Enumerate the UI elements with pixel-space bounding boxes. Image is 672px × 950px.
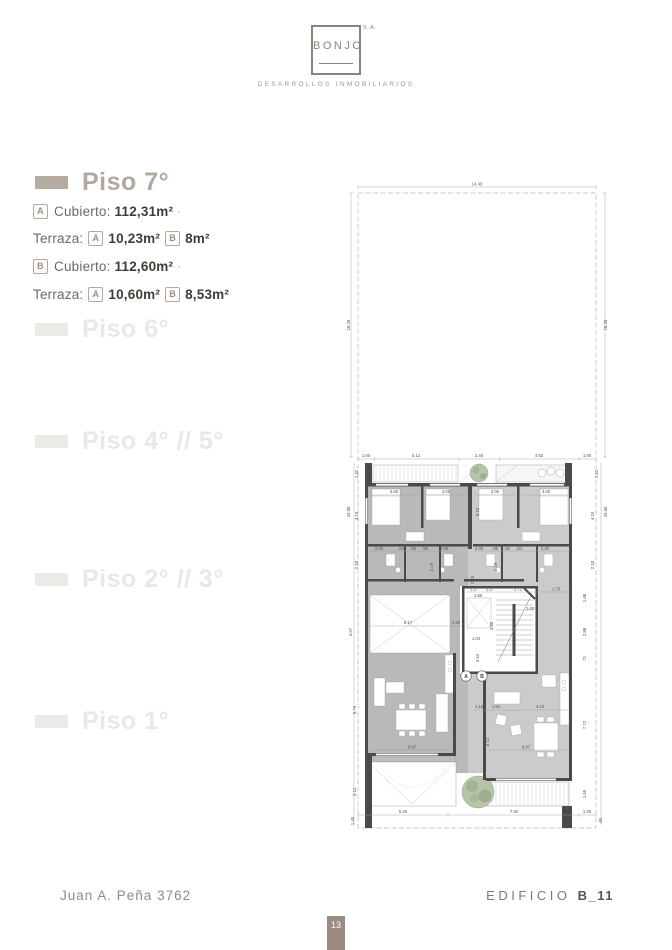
dim-label: 3.05 — [491, 489, 500, 494]
area-unit: m² — [193, 231, 210, 246]
logo-tagline: DESARROLLOS INMOBILIARIOS — [236, 81, 436, 88]
floor-item-piso-4-5[interactable]: Piso 4° // 5° — [35, 427, 224, 456]
floor-bar-icon — [35, 715, 68, 728]
floor-label: Piso 4° // 5° — [82, 427, 224, 456]
dim-label: 43.50 — [603, 506, 608, 517]
dim-label: 1.45 — [350, 816, 355, 825]
dim-label: 1.17 — [470, 587, 479, 592]
unit-a-marker: A — [464, 674, 468, 680]
dim-label: .45 — [598, 817, 603, 824]
brochure-page: BONJO S.A. DESARROLLOS INMOBILIARIOS Pis… — [0, 0, 672, 950]
dim-label: .95 — [492, 546, 499, 551]
area-line-cubierto-a: A Cubierto: 112,31m² · — [33, 204, 181, 219]
unit-a-badge: A — [88, 231, 103, 246]
dim-label: 5.12 — [412, 453, 421, 458]
dim-label: 1.42 — [594, 469, 599, 478]
dim-label: 4.80 — [489, 621, 494, 630]
floor-bar-icon — [35, 573, 68, 586]
area-value: 112,31 — [115, 204, 157, 219]
dim-label: 18.28 — [603, 319, 608, 330]
dim-label: 1.68 — [582, 593, 587, 602]
unit-b-badge: B — [165, 287, 180, 302]
dim-label: 7.72 — [582, 720, 587, 729]
area-value: 10,23 — [108, 231, 143, 246]
dim-label: 1.80 — [474, 593, 483, 598]
floor-item-piso-2-3[interactable]: Piso 2° // 3° — [35, 565, 224, 594]
area-line-terraza-b: Terraza: A 10,60m² B 8,53m² — [33, 287, 229, 302]
logo-underline — [319, 63, 353, 65]
floor-item-piso-7[interactable]: Piso 7° — [35, 168, 169, 197]
unit-b-badge: B — [165, 231, 180, 246]
dim-label: 1.00 — [583, 453, 592, 458]
area-unit: m² — [143, 287, 160, 302]
area-label: Terraza: — [33, 231, 83, 246]
dim-label: 2.20 — [470, 575, 475, 584]
dim-label: 1.16 — [475, 704, 484, 709]
footer-address: Juan A. Peña 3762 — [60, 888, 191, 903]
logo-wordmark: BONJO — [313, 40, 359, 52]
unit-a-badge: A — [33, 204, 48, 219]
dim-label: 2.00 — [440, 546, 449, 551]
separator-dot: · — [177, 206, 181, 218]
dim-label: 6.87 — [408, 745, 417, 750]
dim-label: 5.46 — [399, 809, 408, 814]
logo-frame-icon: BONJO — [311, 25, 361, 75]
dim-label: 1.00 — [362, 453, 371, 458]
separator-dot: · — [177, 261, 181, 273]
dim-label: 6.87 — [522, 745, 531, 750]
area-label: Cubierto: — [54, 259, 111, 274]
dim-label: .60 — [410, 546, 417, 551]
dim-label: 18.28 — [346, 319, 351, 330]
dim-label: 1.91 — [492, 704, 501, 709]
dim-label: 3.10 — [475, 507, 480, 516]
floor-bar-icon — [35, 176, 68, 189]
unit-b-marker: B — [480, 674, 484, 680]
dim-label: 1.00 — [583, 809, 592, 814]
dim-label: 2.30 — [541, 546, 550, 551]
dim-label: 7.92 — [510, 809, 519, 814]
building-label: EDIFICIO — [486, 888, 570, 903]
dim-label: 2.46 — [475, 453, 484, 458]
tree-icon — [470, 464, 488, 482]
dim-label: 1.20 — [452, 620, 461, 625]
dim-label: 1.42 — [354, 469, 359, 478]
floor-label: Piso 6° — [82, 315, 169, 344]
dim-label: 3.05 — [442, 489, 451, 494]
floor-label: Piso 2° // 3° — [82, 565, 224, 594]
unit-b-badge: B — [33, 259, 48, 274]
dim-label: 3.60 — [390, 489, 399, 494]
area-value: 112,60 — [115, 259, 157, 274]
dim-label: 1.17 — [486, 587, 495, 592]
dim-label: .60 — [504, 546, 511, 551]
floor-item-piso-1[interactable]: Piso 1° — [35, 707, 169, 736]
floor-plan: 14.40 18.28 18.28 1.00 5.12 2.46 4.82 1.… — [346, 180, 610, 848]
area-label: Cubierto: — [54, 204, 111, 219]
dim-label: .84 — [516, 546, 523, 551]
dim-label: 3.12 — [352, 787, 357, 796]
page-number-tab: 13 — [327, 916, 345, 950]
dim-label: .71 — [582, 655, 587, 662]
dim-label: 14.40 — [472, 182, 483, 187]
dim-label: 1.04 — [472, 636, 481, 641]
floor-label: Piso 7° — [82, 168, 169, 197]
dim-label: 1.55 — [582, 789, 587, 798]
dim-label: 3.53 — [475, 653, 480, 662]
area-unit: m² — [156, 259, 173, 274]
area-unit: m² — [212, 287, 229, 302]
area-value: 8,53 — [185, 287, 212, 302]
floor-bar-icon — [35, 323, 68, 336]
dim-label: 4.13 — [485, 737, 490, 746]
dim-label: 2.10 — [354, 560, 359, 569]
dim-label: 2.71 — [514, 587, 523, 592]
area-label: Terraza: — [33, 287, 83, 302]
dim-label: 43.50 — [346, 506, 351, 517]
dim-label: 4.19 — [590, 511, 595, 520]
dim-label: 2.10 — [590, 560, 595, 569]
footer-building: EDIFICIO B_11 — [486, 888, 614, 903]
dim-label: 6.17 — [404, 620, 413, 625]
dim-label: .84 — [398, 546, 405, 551]
area-unit: m² — [156, 204, 173, 219]
dim-label: 6.75 — [352, 705, 357, 714]
dim-label: .95 — [422, 546, 429, 551]
dim-label: 2.19 — [493, 562, 498, 571]
area-line-terraza-a: Terraza: A 10,23m² B 8m² — [33, 231, 210, 246]
dim-label: 1.00 — [526, 606, 535, 611]
unit-a-badge: A — [88, 287, 103, 302]
building-code: B_11 — [578, 888, 614, 903]
dim-label: 4.19 — [354, 511, 359, 520]
floor-label: Piso 1° — [82, 707, 169, 736]
dim-label: 4.13 — [536, 704, 545, 709]
dim-label: 2.00 — [375, 546, 384, 551]
floor-item-piso-6[interactable]: Piso 6° — [35, 315, 169, 344]
dim-label: 2.88 — [582, 627, 587, 636]
dim-label: 1.70 — [552, 587, 561, 592]
dim-label: 4.97 — [348, 627, 353, 636]
page-number: 13 — [331, 920, 341, 930]
dim-label: 3.60 — [542, 489, 551, 494]
area-value: 10,60 — [108, 287, 143, 302]
floor-bar-icon — [35, 435, 68, 448]
dim-label: 2.00 — [475, 546, 484, 551]
dim-label: 4.82 — [535, 453, 544, 458]
area-line-cubierto-b: B Cubierto: 112,60m² · — [33, 259, 181, 274]
dim-label: 2.19 — [429, 562, 434, 571]
logo-suffix: S.A. — [363, 25, 377, 31]
area-value: 8 — [185, 231, 193, 246]
area-unit: m² — [143, 231, 160, 246]
